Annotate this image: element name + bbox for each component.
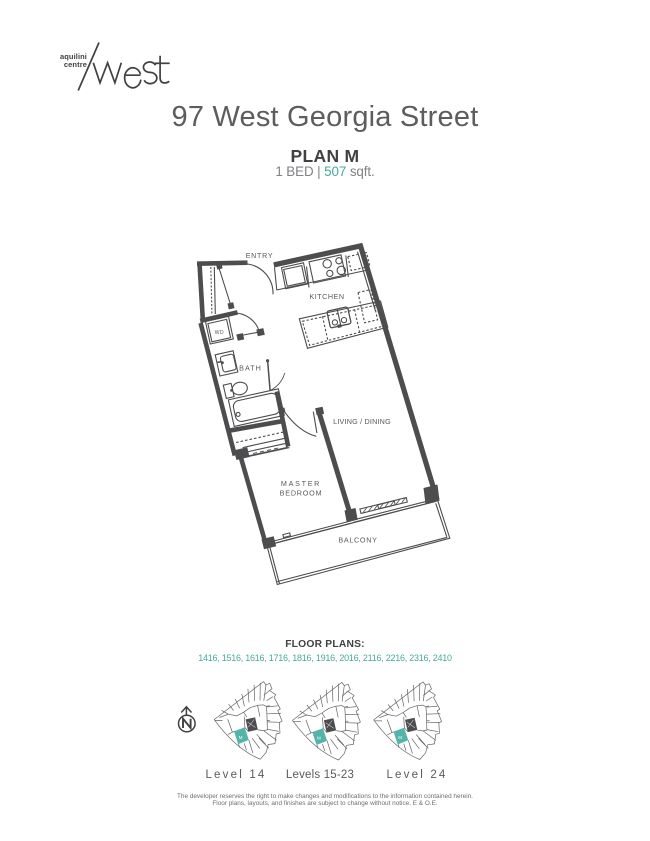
svg-text:KITCHEN: KITCHEN [309,292,344,301]
svg-text:BEDROOM: BEDROOM [280,489,323,498]
svg-text:LIVING / DINING: LIVING / DINING [333,417,391,426]
svg-text:M: M [239,735,243,740]
svg-text:ENTRY: ENTRY [246,253,274,260]
svg-text:WD: WD [215,330,225,336]
svg-text:BALCONY: BALCONY [338,535,377,544]
svg-text:MASTER: MASTER [281,479,321,488]
svg-text:BATH: BATH [239,364,262,373]
